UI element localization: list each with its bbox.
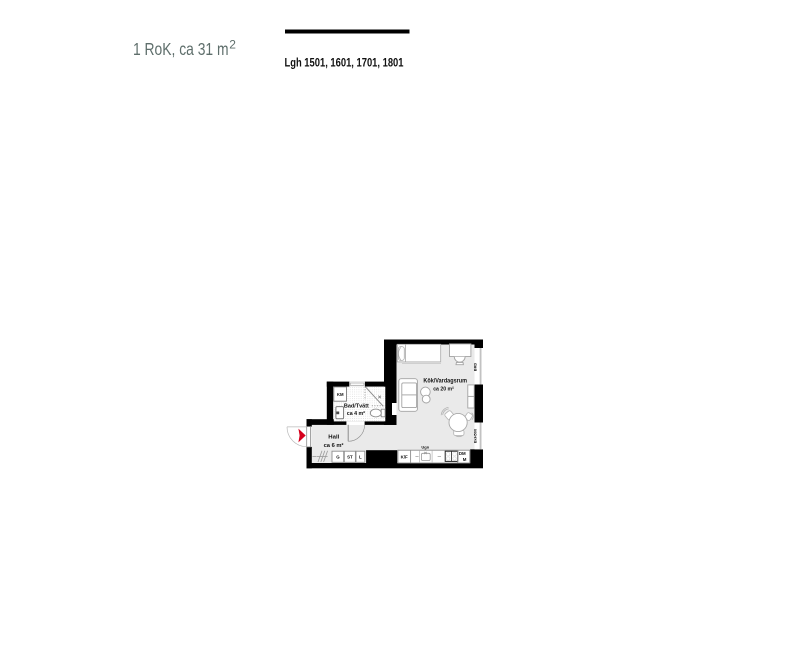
svg-text:Bad/Tvätt: Bad/Tvätt (344, 403, 369, 409)
svg-text:2: 2 (229, 38, 236, 52)
svg-text:ca 6 m²: ca 6 m² (324, 443, 344, 449)
svg-text:1 RoK, ca 31 m: 1 RoK, ca 31 m (133, 39, 229, 59)
svg-text:L: L (359, 455, 362, 460)
svg-text:ST: ST (347, 455, 353, 460)
svg-text:KM: KM (337, 392, 344, 397)
svg-text:G: G (336, 455, 340, 460)
svg-text:DM: DM (459, 451, 466, 456)
svg-text:ca 20 m²: ca 20 m² (433, 386, 454, 393)
svg-text:Lgh 1501, 1601, 1701, 1801: Lgh 1501, 1601, 1701, 1801 (285, 55, 404, 69)
svg-text:BRD: BRD (472, 363, 477, 372)
svg-text:Ugn: Ugn (421, 444, 429, 449)
svg-text:Hall: Hall (328, 434, 339, 440)
svg-text:K/F: K/F (401, 454, 408, 459)
svg-text:BxH500: BxH500 (472, 429, 477, 443)
svg-text:M: M (463, 457, 467, 462)
svg-text:Kök/Vardagsrum: Kök/Vardagsrum (423, 379, 467, 385)
svg-text:ca 4 m²: ca 4 m² (347, 411, 365, 417)
